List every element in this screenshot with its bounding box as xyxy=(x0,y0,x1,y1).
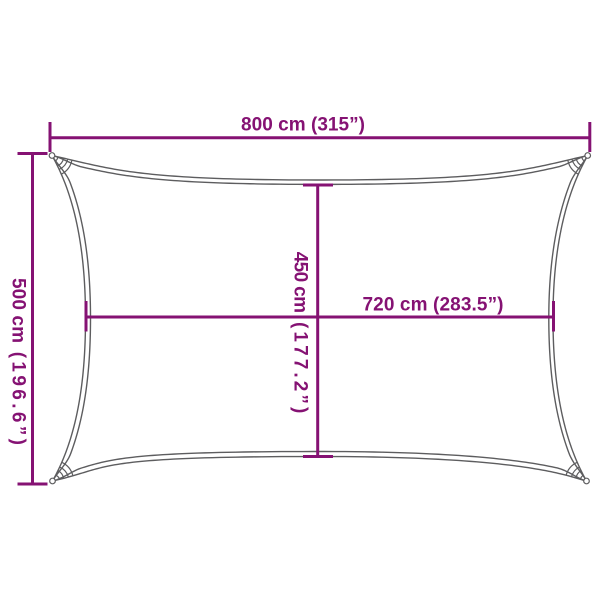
svg-text:720 cm (283.5”): 720 cm (283.5”) xyxy=(363,295,504,316)
svg-text:500 cm: 500 cm xyxy=(7,278,28,343)
svg-text:(177.2”): (177.2”) xyxy=(290,322,311,413)
svg-text:450 cm: 450 cm xyxy=(290,252,311,313)
svg-text:800 cm (315”): 800 cm (315”) xyxy=(241,115,365,136)
svg-text:(196.6”): (196.6”) xyxy=(7,352,28,445)
